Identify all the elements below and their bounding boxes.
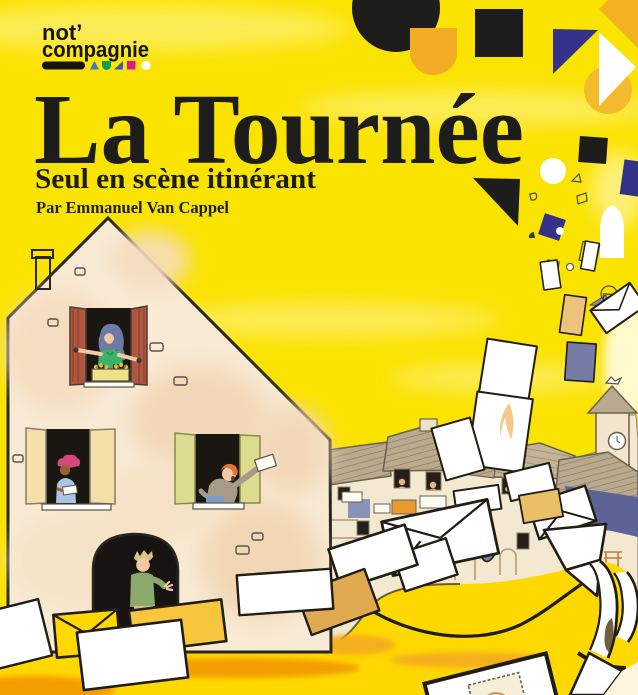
- svg-text:Par Emmanuel Van Cappel: Par Emmanuel Van Cappel: [36, 198, 229, 217]
- svg-text:compagnie: compagnie: [42, 37, 149, 62]
- svg-text:Seul en scène itinérant: Seul en scène itinérant: [35, 164, 317, 195]
